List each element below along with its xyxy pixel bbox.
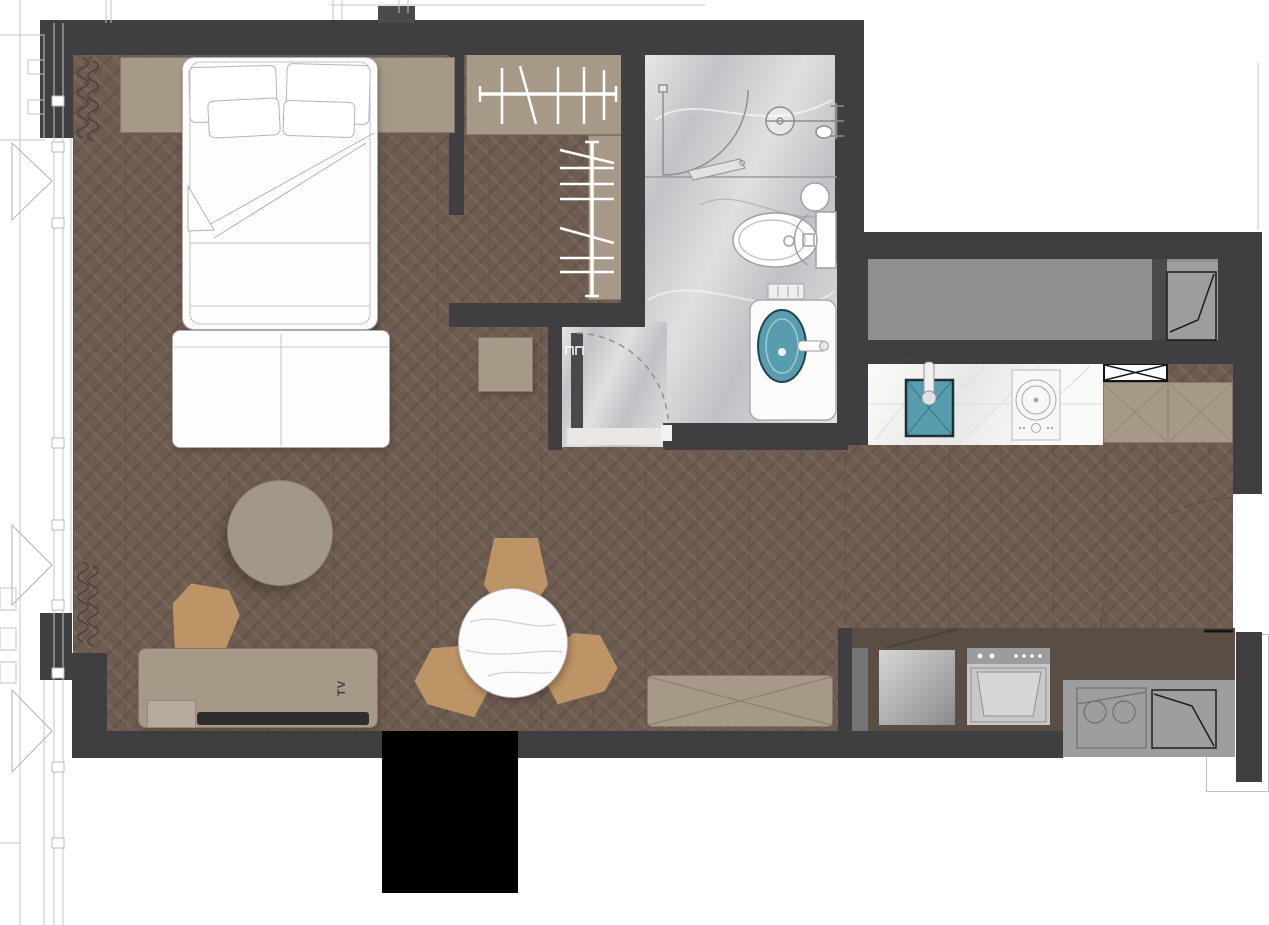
window-mullion-clips bbox=[52, 96, 64, 848]
wall-top-protrusion bbox=[378, 6, 415, 23]
tall-cabinets bbox=[1103, 382, 1233, 443]
wall-right-upper bbox=[1218, 232, 1262, 364]
kitchen-sink-label: KB bbox=[905, 352, 914, 359]
storage-bench bbox=[647, 675, 833, 727]
washing-machine bbox=[877, 648, 957, 727]
tv-label: TV bbox=[336, 680, 348, 696]
wall-pier-left-bottom bbox=[40, 613, 72, 680]
corridor-door-bay bbox=[1167, 262, 1218, 340]
bathroom-door-jamb bbox=[661, 425, 672, 441]
wall-corridor-bottom bbox=[837, 340, 1262, 364]
bathroom-floor bbox=[643, 53, 837, 423]
wardrobe-floor-top bbox=[466, 53, 623, 135]
wall-right-mid bbox=[1233, 364, 1262, 494]
wall-bottom bbox=[72, 731, 1063, 758]
bathroom-threshold bbox=[567, 428, 665, 445]
pillow bbox=[282, 100, 355, 138]
wardrobe-floor-side bbox=[588, 135, 623, 300]
bathroom-door-leaf bbox=[571, 333, 583, 428]
floor-plan: TV KB bbox=[0, 0, 1269, 925]
wall-wardrobe-bath bbox=[621, 53, 645, 310]
wall-utility-stub bbox=[838, 628, 852, 731]
utility-platform bbox=[1063, 680, 1235, 757]
tv bbox=[197, 712, 369, 725]
wall-bath-left bbox=[548, 303, 562, 450]
utility-nook-wall-sliver bbox=[852, 648, 868, 731]
pillow bbox=[207, 97, 281, 139]
utility-band-right bbox=[1063, 628, 1235, 680]
wall-pier-left-top bbox=[40, 53, 73, 138]
wall-bath-bottom bbox=[663, 423, 848, 450]
wall-bath-right bbox=[835, 53, 864, 262]
dining-table bbox=[458, 588, 568, 698]
wall-corridor-top bbox=[837, 232, 1262, 259]
bed-bench bbox=[172, 330, 390, 448]
dryer-control-strip bbox=[967, 648, 1050, 664]
kitchen-counter bbox=[868, 364, 1103, 445]
shaft bbox=[382, 731, 518, 893]
side-table bbox=[478, 337, 533, 392]
corridor-divider-wall bbox=[1152, 259, 1167, 340]
round-rug bbox=[227, 480, 333, 586]
range-hood-cabinet bbox=[1103, 363, 1168, 382]
tv-console-drawer bbox=[147, 700, 196, 728]
wall-wardrobe-bottom bbox=[449, 303, 645, 327]
wall-entry-pier bbox=[1236, 632, 1262, 782]
